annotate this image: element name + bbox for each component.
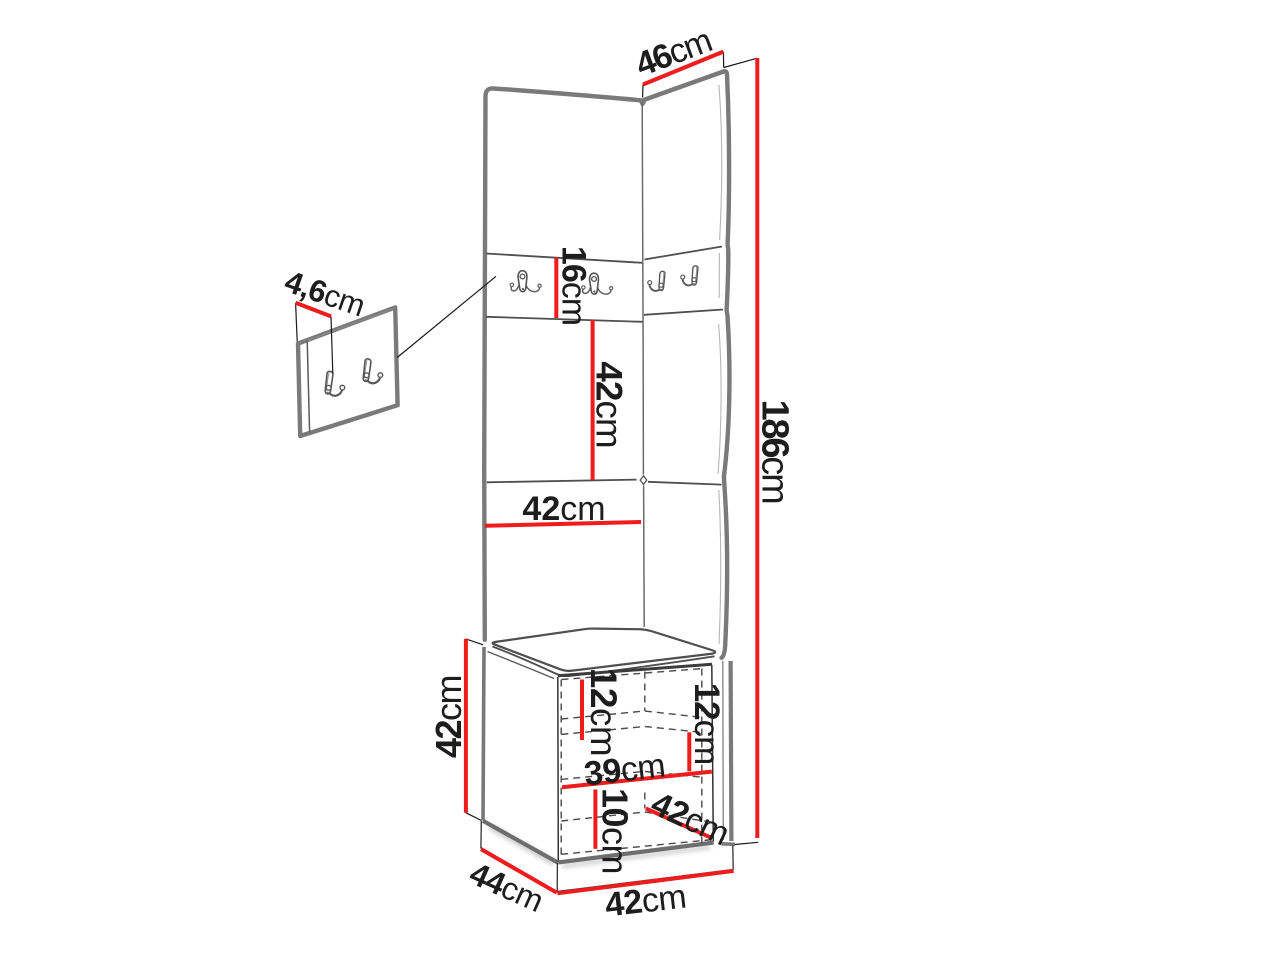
svg-text:42cm: 42cm (589, 361, 630, 447)
svg-text:12cm: 12cm (583, 668, 624, 756)
svg-text:10cm: 10cm (595, 788, 636, 874)
svg-text:42cm: 42cm (522, 490, 605, 528)
svg-text:12cm: 12cm (687, 683, 726, 765)
svg-text:16cm: 16cm (555, 246, 593, 325)
svg-text:42cm: 42cm (428, 676, 469, 758)
svg-text:186cm: 186cm (754, 399, 796, 503)
